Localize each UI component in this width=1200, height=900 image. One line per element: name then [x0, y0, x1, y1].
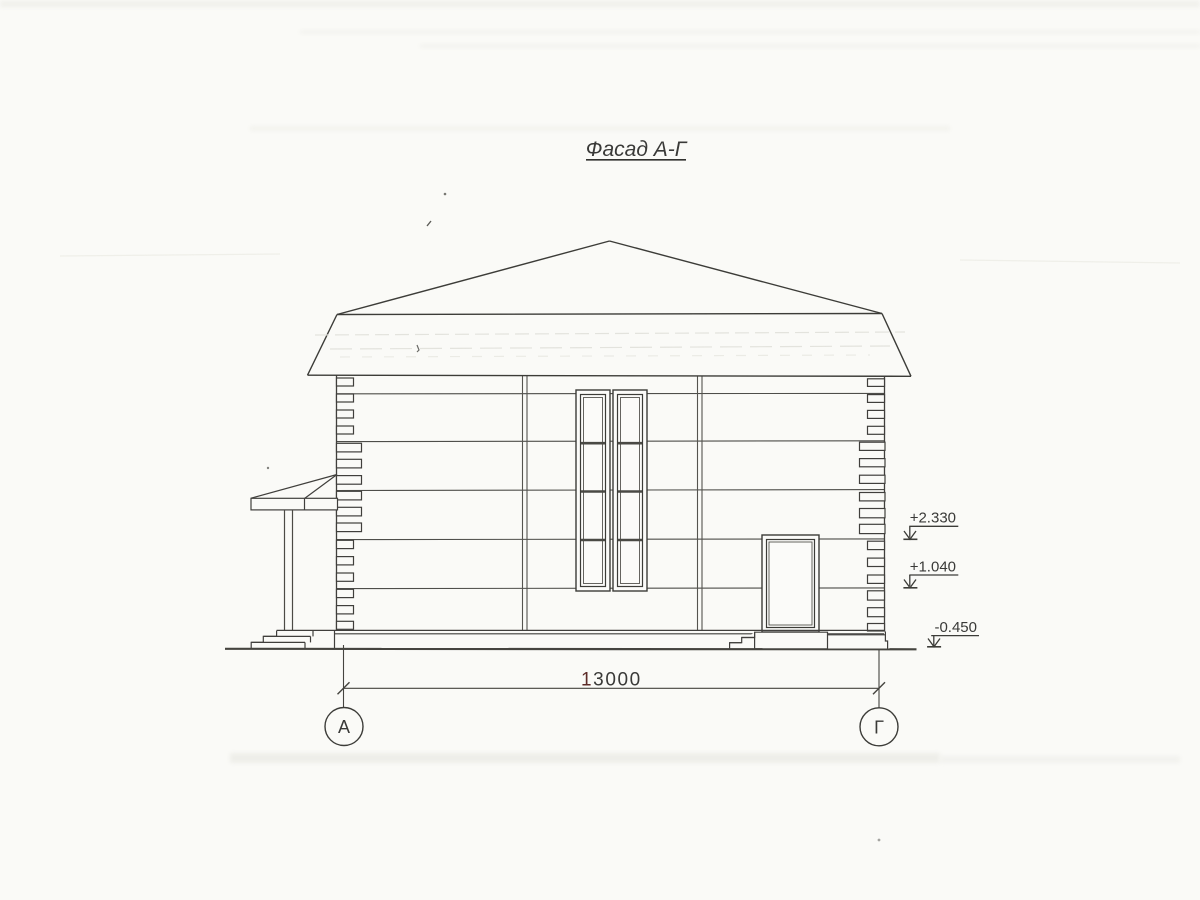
svg-text:13000: 13000	[581, 670, 642, 691]
svg-text:+1.040: +1.040	[910, 559, 956, 576]
svg-text:Фасад А-Г: Фасад А-Г	[586, 138, 688, 161]
svg-text:Г: Г	[874, 717, 884, 737]
svg-text:А: А	[338, 717, 350, 737]
svg-text:+2.330: +2.330	[910, 510, 956, 527]
svg-text:-0.450: -0.450	[934, 619, 977, 636]
